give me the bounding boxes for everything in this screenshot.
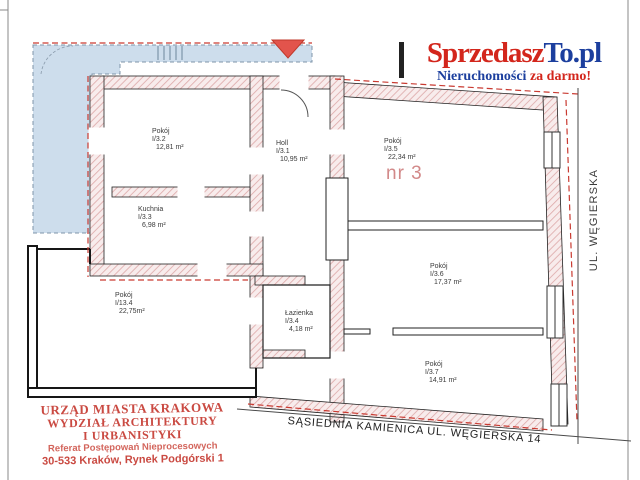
room-label-pokoj-13-4: Pokój I/13.4 22,75m² <box>115 292 145 316</box>
room-unit: I/3.6 <box>430 271 462 279</box>
room-unit: I/3.1 <box>276 148 308 156</box>
room-area: 4,18 m² <box>285 326 313 334</box>
room-label-holl-3-1: Holl I/3.1 10,95 m² <box>276 140 308 164</box>
room-name: Pokój <box>430 263 462 271</box>
room-name: Pokój <box>152 128 184 136</box>
gate-post-mark <box>399 42 404 78</box>
entrance-door-arc <box>281 90 308 117</box>
room-name: Pokój <box>115 292 145 300</box>
room-label-pokoj-3-6: Pokój I/3.6 17,37 m² <box>430 263 462 287</box>
room-unit: I/3.5 <box>384 146 416 154</box>
room-area: 22,75m² <box>115 308 145 316</box>
room-area: 6,98 m² <box>138 222 166 230</box>
room-label-pokoj-3-5: Pokój I/3.5 22,34 m² <box>384 138 416 162</box>
city-office-stamp: URZĄD MIASTA KRAKOWA WYDZIAŁ ARCHITEKTUR… <box>24 400 240 467</box>
room-label-lazienka-3-4: Łazienka I/3.4 4,18 m² <box>285 310 313 334</box>
room-area: 10,95 m² <box>276 156 308 164</box>
room-name: Pokój <box>384 138 416 146</box>
room-name: Holl <box>276 140 308 148</box>
room-unit: I/3.4 <box>285 318 313 326</box>
room-label-kuchnia-3-3: Kuchnia I/3.3 6,98 m² <box>138 206 166 230</box>
tagline-part-blue: Nieruchomości <box>437 69 530 84</box>
room-area: 14,91 m² <box>425 377 457 385</box>
tagline-part-red: za darmo! <box>530 69 591 84</box>
room-unit: I/3.7 <box>425 369 457 377</box>
room-unit: I/3.2 <box>152 136 184 144</box>
brand-part-red: Sprzedasz <box>427 37 544 69</box>
room-label-pokoj-3-2: Pokój I/3.2 12,81 m² <box>152 128 184 152</box>
scanned-floorplan-page: SprzedaszTo.pl Nieruchomości za darmo! n… <box>0 0 640 480</box>
room-area: 17,37 m² <box>430 279 462 287</box>
room-name: Łazienka <box>285 310 313 318</box>
room-area: 22,34 m² <box>384 154 416 162</box>
room-label-pokoj-3-7: Pokój I/3.7 14,91 m² <box>425 361 457 385</box>
room-area: 12,81 m² <box>152 144 184 152</box>
brand-part-blue: To.pl <box>544 37 602 69</box>
room-name: Kuchnia <box>138 206 166 214</box>
site-logo: SprzedaszTo.pl Nieruchomości za darmo! <box>408 38 620 85</box>
room-name: Pokój <box>425 361 457 369</box>
site-logo-brand: SprzedaszTo.pl <box>408 38 620 68</box>
site-logo-tagline: Nieruchomości za darmo! <box>408 70 620 85</box>
street-name-label: UL. WĘGIERSKA <box>588 155 600 285</box>
apartment-number-label: nr 3 <box>386 163 423 185</box>
room-unit: I/3.3 <box>138 214 166 222</box>
room-unit: I/13.4 <box>115 300 145 308</box>
